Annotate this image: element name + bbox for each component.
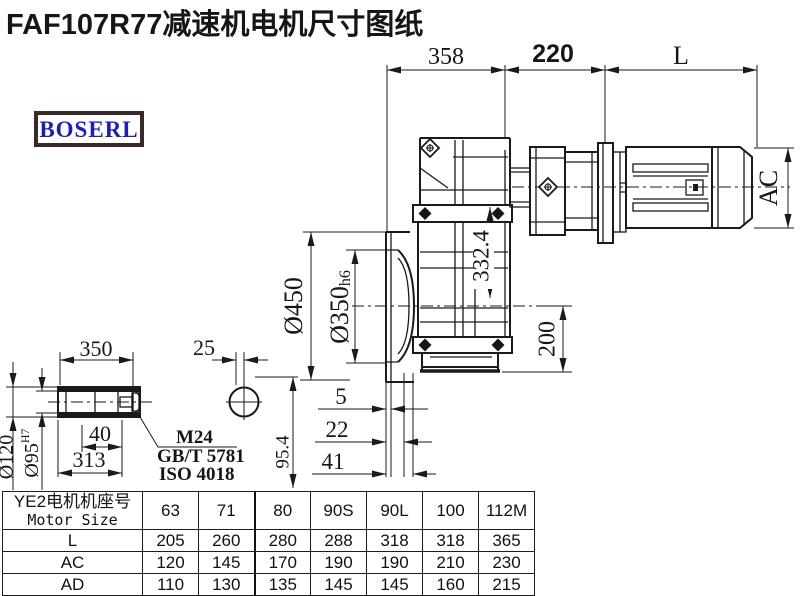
size-col-63: 63 — [143, 492, 199, 530]
size-col-112m: 112M — [479, 492, 535, 530]
dim-220-label: 220 — [532, 40, 574, 68]
size-col-90l: 90L — [367, 492, 423, 530]
machine-outlines — [58, 138, 752, 417]
table-row-L: L 205 260 280 288 318 318 365 — [3, 530, 535, 552]
cell-L-80: 280 — [255, 530, 311, 552]
cell-L-90s: 288 — [311, 530, 367, 552]
cell-AD-90l: 145 — [367, 574, 423, 596]
cell-AD-90s: 145 — [311, 574, 367, 596]
dim-350len-label: 350 — [80, 336, 113, 361]
cell-AD-71: 130 — [199, 574, 255, 596]
thread-callout-m24: M24 — [176, 427, 213, 448]
cell-AD-80: 135 — [255, 574, 311, 596]
table-header-en: Motor Size — [3, 512, 142, 529]
dim-350h6-label: Ø350h6 — [325, 270, 354, 344]
cell-AC-90l: 190 — [367, 552, 423, 574]
table-header-cell: YE2电机机座号 Motor Size — [3, 492, 143, 530]
cell-L-112m: 365 — [479, 530, 535, 552]
shaft-hatch-bands — [58, 184, 698, 417]
row-label-AD: AD — [3, 574, 143, 596]
dim-954-label: 95.4 — [272, 435, 293, 469]
cell-AC-90s: 190 — [311, 552, 367, 574]
dim-AC-label: AC — [754, 170, 783, 206]
row-label-AC: AC — [3, 552, 143, 574]
dim-200-label: 200 — [535, 321, 561, 357]
dim-40-label: 40 — [89, 421, 111, 446]
dimension-arrows — [10, 67, 792, 489]
dim-313-label: 313 — [73, 447, 106, 472]
drawing-page: { "title": "FAF107R77减速机电机尺寸图纸", "logo":… — [0, 0, 800, 596]
size-col-90s: 90S — [311, 492, 367, 530]
dim-25-label: 25 — [193, 335, 215, 360]
size-col-71: 71 — [199, 492, 255, 530]
dim-120-label: Ø120 — [0, 435, 18, 479]
motor-size-table: YE2电机机座号 Motor Size 63 71 80 90S 90L 100… — [2, 491, 535, 596]
dim-332-label: 332.4 — [468, 230, 493, 282]
dim-22-label: 22 — [326, 417, 349, 442]
cell-AD-63: 110 — [143, 574, 199, 596]
dim-95h7-label: Ø95H7 — [18, 428, 43, 477]
cell-L-71: 260 — [199, 530, 255, 552]
dim-41-label: 41 — [322, 449, 345, 474]
cell-AC-112m: 230 — [479, 552, 535, 574]
table-row-AD: AD 110 130 135 145 145 160 215 — [3, 574, 535, 596]
cell-L-100: 318 — [423, 530, 479, 552]
size-col-100: 100 — [423, 492, 479, 530]
cell-AC-63: 120 — [143, 552, 199, 574]
cell-L-90l: 318 — [367, 530, 423, 552]
row-label-L: L — [3, 530, 143, 552]
thread-callout-iso: ISO 4018 — [159, 464, 235, 485]
cell-AC-80: 170 — [255, 552, 311, 574]
table-header-row: YE2电机机座号 Motor Size 63 71 80 90S 90L 100… — [3, 492, 535, 530]
cell-AD-112m: 215 — [479, 574, 535, 596]
dim-5-label: 5 — [335, 384, 347, 409]
dim-L-label: L — [673, 41, 689, 70]
cell-AC-100: 210 — [423, 552, 479, 574]
cell-AC-71: 145 — [199, 552, 255, 574]
dim-450-label: Ø450 — [279, 277, 308, 335]
size-col-80: 80 — [255, 492, 311, 530]
cell-L-63: 205 — [143, 530, 199, 552]
dimension-lines — [6, 65, 794, 490]
table-header-cn: YE2电机机座号 — [3, 492, 142, 512]
cell-AD-100: 160 — [423, 574, 479, 596]
machine-detail-lines — [66, 140, 744, 415]
dim-358-label: 358 — [428, 44, 464, 70]
table-row-AC: AC 120 145 170 190 190 210 230 — [3, 552, 535, 574]
